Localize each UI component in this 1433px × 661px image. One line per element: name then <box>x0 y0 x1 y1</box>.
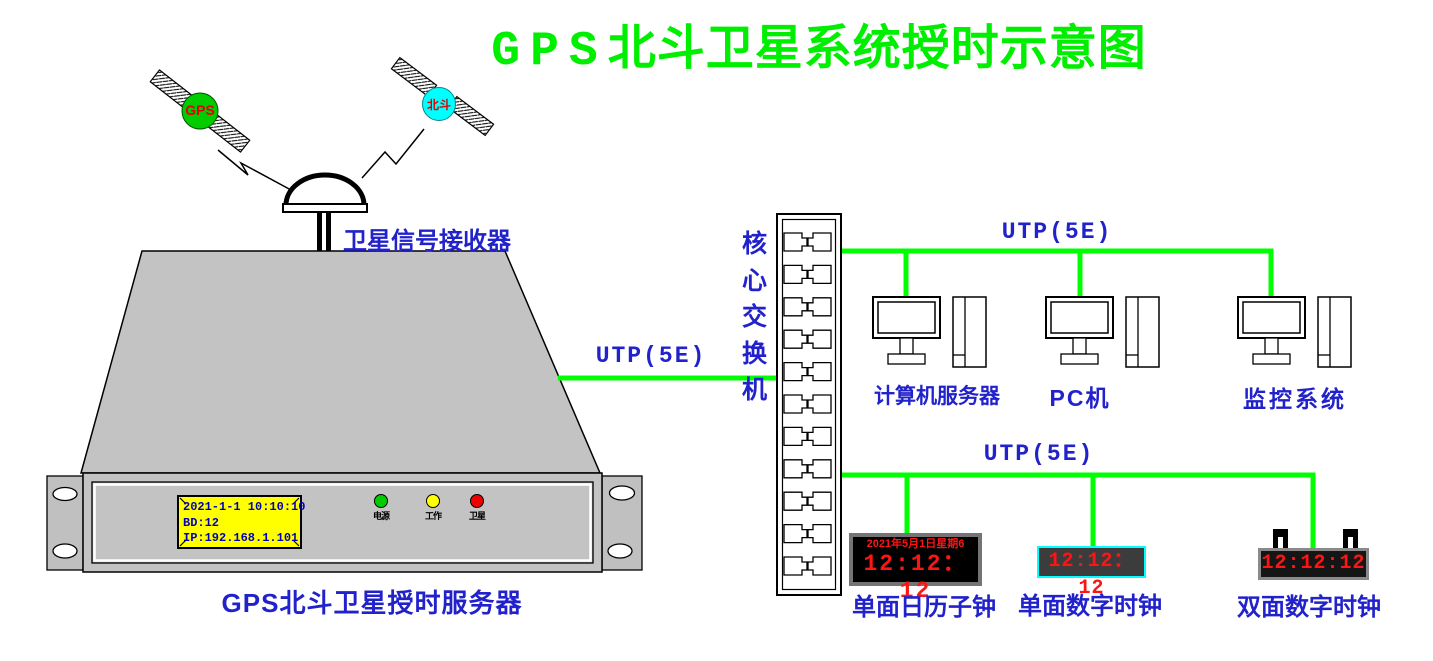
diagram-canvas: GPS北斗卫星系统授时示意图 GPS 北斗 卫星信号接收器 UTP(5E) UT… <box>0 0 1433 661</box>
pc-icon <box>1046 297 1159 367</box>
rack-screw-hole <box>53 488 77 501</box>
dual-digital-clock-label: 双面数字时钟 <box>1237 587 1381 622</box>
work-led-label: 工作 <box>425 509 441 522</box>
dual-clock-bracket <box>1343 529 1358 548</box>
diagram-shapes <box>0 0 1433 661</box>
power-led <box>375 495 388 508</box>
monitor-system-label: 监控系统 <box>1243 380 1347 414</box>
rack-screw-hole <box>53 544 77 558</box>
single-digital-clock: 12:12： 12 <box>1037 546 1146 578</box>
satellite-led-label: 卫星 <box>469 509 485 522</box>
computer-server-icon <box>873 297 986 367</box>
gps-satellite-label: GPS <box>185 102 215 118</box>
rack-screw-hole <box>610 486 635 500</box>
calendar-clock-date: 2021年5月1日星期6 <box>853 538 978 551</box>
single-digital-clock-label: 单面数字时钟 <box>1018 586 1162 621</box>
time-server-chassis <box>47 251 642 572</box>
rack-screw-hole <box>608 544 632 558</box>
utp-label-bottom-bus: UTP(5E) <box>984 441 1095 467</box>
dual-clock-bracket <box>1273 529 1288 548</box>
title-latin: GPS <box>491 25 607 79</box>
cable-top-bus <box>838 251 1271 298</box>
core-switch-label: 核心交换机 <box>741 226 768 409</box>
gps-signal-zigzag <box>218 150 291 190</box>
lcd-line-bd: BD:12 <box>183 516 305 532</box>
lcd-line-datetime: 2021-1-1 10:10:10 <box>183 500 305 516</box>
page-title: GPS北斗卫星系统授时示意图 <box>491 8 1146 79</box>
lcd-line-ip: IP:192.168.1.101 <box>183 531 305 547</box>
calendar-clock: 2021年5月1日星期6 12:12： 12 <box>849 533 982 586</box>
pc-label: PC机 <box>1050 379 1111 413</box>
computer-server-label: 计算机服务器 <box>874 380 1000 410</box>
power-led-label: 电源 <box>373 509 389 522</box>
beidou-signal-zigzag <box>362 129 424 178</box>
work-led <box>427 495 440 508</box>
title-chinese: 北斗卫星系统授时示意图 <box>608 22 1147 75</box>
calendar-clock-label: 单面日历子钟 <box>852 587 996 622</box>
monitor-system-icon <box>1238 297 1351 367</box>
dual-digital-clock: 12:12:12 <box>1258 548 1369 580</box>
dual-digital-clock-time: 12:12:12 <box>1261 551 1366 576</box>
core-switch-icon <box>777 214 841 595</box>
receiver-label: 卫星信号接收器 <box>343 221 511 256</box>
satellite-led <box>471 495 484 508</box>
utp-label-server-link: UTP(5E) <box>596 343 707 369</box>
lcd-text: 2021-1-1 10:10:10 BD:12 IP:192.168.1.101 <box>183 500 305 547</box>
time-server-label: GPS北斗卫星授时服务器 <box>222 583 523 620</box>
beidou-satellite-label: 北斗 <box>427 96 451 113</box>
utp-label-top-bus: UTP(5E) <box>1002 219 1113 245</box>
